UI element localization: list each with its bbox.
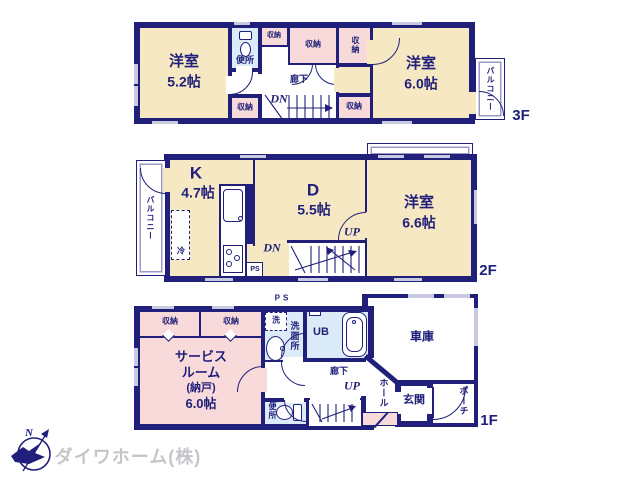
floor-plan-canvas: 洋室 5.2帖 便所 収納 収納 収納 収納 収納 廊下 DN 洋室 6.0帖 … — [0, 0, 640, 480]
f3-hall-passage-gap — [334, 68, 342, 92]
f1-toilet-stairs-wall — [306, 400, 309, 426]
f3-window-west-2 — [134, 86, 138, 106]
f1-stairs-up — [310, 402, 361, 424]
f1-service-line3: (納戸) — [186, 382, 215, 394]
f2-window-south-2 — [298, 278, 328, 281]
f3-window-south-2 — [382, 121, 412, 124]
f2-window-north-2 — [378, 155, 404, 158]
f2-burner-1 — [226, 249, 232, 255]
f2-stairs-updn — [289, 244, 363, 275]
f1-closet-a-label: 収納 — [162, 318, 178, 327]
f1-floor-tag: 1F — [480, 413, 498, 430]
f3-room-west-name: 洋室 — [169, 54, 199, 71]
company-logo-text: ダイワホーム(株) — [55, 443, 201, 469]
f2-balcony-label: バルコニー — [146, 196, 154, 241]
f1-hallway-label: 廊下 — [330, 367, 348, 377]
f3-vestibule-east-door-gap — [257, 74, 263, 94]
f3-room-west-size: 5.2帖 — [167, 74, 200, 89]
f1-garage-window-1 — [408, 294, 434, 298]
f2-counter-wall-stub — [246, 184, 254, 244]
f2-up-label: UP — [344, 225, 360, 238]
f3-window-north-2 — [392, 22, 422, 25]
f2-room-east-name: 洋室 — [404, 195, 434, 212]
f2-ps-label: PS — [250, 266, 259, 274]
f3-closet-sw-label: 収納 — [237, 104, 253, 113]
f1-ps-label: PS — [275, 295, 292, 304]
f2-burner-2 — [226, 261, 232, 267]
f1-service-line2: ルーム — [182, 366, 221, 380]
bird-icon — [11, 442, 45, 464]
f2-room-east-size: 6.6帖 — [402, 215, 435, 230]
f3-balcony-label: バルコニー — [486, 67, 494, 112]
f2-window-north-3 — [424, 155, 450, 158]
f1-garage-label: 車庫 — [410, 330, 434, 343]
f3-toilet-door-gap — [236, 66, 252, 72]
f1-service-line4: 6.0帖 — [185, 397, 216, 411]
f2-window-south-1 — [205, 278, 233, 281]
f2-window-north-1 — [240, 155, 266, 158]
f1-hall-label: ホール — [379, 378, 388, 408]
f2-fridge-label: 冷 — [177, 248, 185, 257]
f3-hallway-label: 廊下 — [290, 75, 308, 85]
f3-closet-n-large-label: 収納 — [305, 41, 321, 50]
f1-entrance-label: 玄関 — [403, 394, 425, 406]
f1-window-north-2 — [212, 306, 234, 309]
f2-kitchen-name: K — [190, 165, 202, 184]
f1-ub-shelf-icon — [309, 311, 321, 316]
f2-window-south-3 — [394, 278, 422, 281]
f1-window-west-1 — [134, 348, 138, 366]
f3-window-west-1 — [134, 64, 138, 84]
f3-toilet-label: 便所 — [236, 56, 254, 66]
f1-toilet-label: 便所 — [268, 402, 276, 420]
f2-dn-label: DN — [263, 241, 280, 254]
compass-logo-icon: N — [8, 422, 60, 476]
f2-floor-tag: 2F — [479, 263, 497, 280]
f1-closet-b-label: 収納 — [223, 318, 239, 327]
f2-window-east — [474, 190, 477, 224]
f3-closet-e-top-label: 収納 — [351, 36, 359, 54]
f2-kitchen-size: 4.7帖 — [181, 185, 214, 200]
f3-window-north-1 — [234, 22, 250, 25]
f1-garage-window-east — [474, 308, 478, 346]
f1-up-label: UP — [344, 379, 360, 392]
f3-dn-label: DN — [270, 92, 287, 105]
f1-window-west-2 — [134, 368, 138, 386]
f3-floor-tag: 3F — [512, 108, 530, 125]
f3-window-south-1 — [152, 121, 178, 124]
compass-n-text: N — [24, 427, 34, 439]
f1-bathtub-drain-icon — [352, 320, 356, 324]
f3-closet-n-small-label: 収納 — [267, 32, 281, 40]
f1-service-line1: サービス — [175, 350, 227, 364]
f1-washer-label: 洗 — [272, 317, 280, 326]
f2-dining-name: D — [307, 182, 319, 201]
f3-toilet-tank-icon — [239, 31, 252, 40]
f2-burner-3 — [234, 255, 240, 261]
f1-washroom-label: 洗面所 — [290, 321, 299, 351]
f1-ub-label: UB — [313, 326, 329, 338]
f3-closet-e-bottom-label: 収納 — [346, 103, 362, 112]
f3-room-east-name: 洋室 — [406, 56, 436, 73]
f3-balcony-door-gap — [469, 92, 476, 114]
f1-garage-window-2 — [444, 294, 470, 298]
f1-porch-label: ポーチ — [459, 386, 468, 416]
f2-dining-size: 5.5帖 — [297, 202, 330, 217]
f3-passage-east — [337, 65, 372, 95]
f2-faucet-icon — [238, 216, 243, 221]
f3-room-east-size: 6.0帖 — [404, 76, 437, 91]
f1-window-north-1 — [152, 306, 174, 309]
f1-hall-entrance-gap — [394, 392, 401, 414]
